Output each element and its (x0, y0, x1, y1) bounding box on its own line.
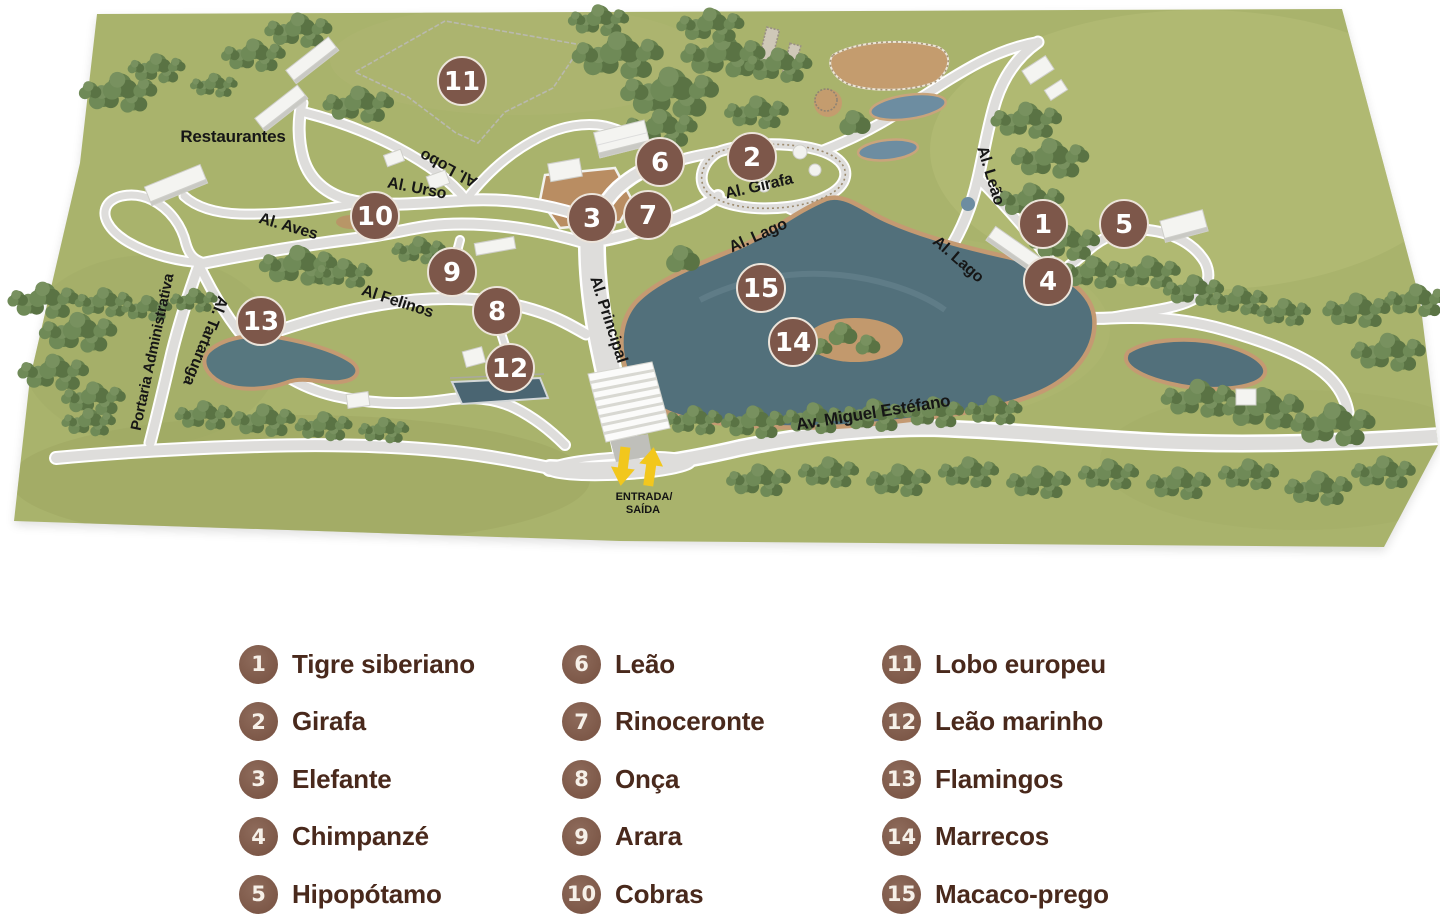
entrance-label-line1: ENTRADA/ (616, 491, 673, 503)
legend-column-1: 1Tigre siberiano 2Girafa 3Elefante 4Chim… (239, 645, 475, 916)
legend-label-14: Marrecos (935, 821, 1049, 852)
legend-item-9: 9Arara (562, 818, 764, 856)
legend-badge-7: 7 (562, 702, 601, 741)
svg-text:6: 6 (651, 148, 669, 178)
label-restaurantes: Restaurantes (180, 127, 285, 146)
legend-label-2: Girafa (292, 706, 366, 737)
legend-badge-15: 15 (882, 875, 921, 914)
legend-badge-1: 1 (239, 645, 278, 684)
legend-label-1: Tigre siberiano (292, 649, 475, 680)
svg-text:3: 3 (583, 204, 601, 234)
legend-item-13: 13Flamingos (882, 760, 1109, 798)
legend-badge-4: 4 (239, 817, 278, 856)
map-marker-12: 12 (486, 344, 534, 392)
map-marker-11: 11 (438, 57, 486, 105)
legend-item-10: 10Cobras (562, 875, 764, 913)
legend-badge-9: 9 (562, 817, 601, 856)
zoo-map: ENTRADA/ SAÍDA Restaurantes Al. Lobo Al.… (0, 0, 1440, 560)
legend-label-7: Rinoceronte (615, 706, 764, 737)
map-marker-13: 13 (237, 297, 285, 345)
svg-text:9: 9 (443, 258, 461, 288)
legend-badge-10: 10 (562, 875, 601, 914)
legend-label-6: Leão (615, 649, 675, 680)
legend-label-3: Elefante (292, 764, 392, 795)
legend-item-11: 11Lobo europeu (882, 645, 1109, 683)
map-marker-5: 5 (1100, 200, 1148, 248)
svg-text:13: 13 (243, 307, 279, 337)
legend-label-9: Arara (615, 821, 682, 852)
legend-item-8: 8Onça (562, 760, 764, 798)
legend-label-4: Chimpanzé (292, 821, 429, 852)
map-marker-9: 9 (428, 248, 476, 296)
legend-item-15: 15Macaco-prego (882, 875, 1109, 913)
legend-item-3: 3Elefante (239, 760, 475, 798)
svg-text:1: 1 (1034, 210, 1052, 240)
legend-item-2: 2Girafa (239, 703, 475, 741)
legend-badge-14: 14 (882, 817, 921, 856)
legend-badge-5: 5 (239, 875, 278, 914)
svg-text:8: 8 (488, 297, 506, 327)
legend-badge-12: 12 (882, 702, 921, 741)
pond-small-3 (961, 197, 975, 211)
map-marker-1: 1 (1019, 200, 1067, 248)
svg-text:15: 15 (743, 274, 779, 304)
legend-item-12: 12Leão marinho (882, 703, 1109, 741)
svg-text:5: 5 (1115, 210, 1133, 240)
svg-text:4: 4 (1039, 267, 1057, 297)
legend-label-13: Flamingos (935, 764, 1063, 795)
svg-text:12: 12 (492, 354, 528, 384)
legend-label-10: Cobras (615, 879, 703, 910)
legend-badge-11: 11 (882, 645, 921, 684)
map-marker-8: 8 (473, 287, 521, 335)
legend-item-14: 14Marrecos (882, 818, 1109, 856)
legend-item-4: 4Chimpanzé (239, 818, 475, 856)
legend-label-15: Macaco-prego (935, 879, 1109, 910)
legend-badge-6: 6 (562, 645, 601, 684)
legend-label-11: Lobo europeu (935, 649, 1106, 680)
zoo-map-page: ENTRADA/ SAÍDA Restaurantes Al. Lobo Al.… (0, 0, 1440, 916)
svg-text:14: 14 (775, 328, 811, 358)
legend-column-3: 11Lobo europeu 12Leão marinho 13Flamingo… (882, 645, 1109, 916)
map-marker-3: 3 (568, 194, 616, 242)
map-marker-2: 2 (728, 133, 776, 181)
legend-badge-2: 2 (239, 702, 278, 741)
legend-label-8: Onça (615, 764, 679, 795)
legend-badge-13: 13 (882, 760, 921, 799)
legend-column-2: 6Leão 7Rinoceronte 8Onça 9Arara 10Cobras (562, 645, 764, 916)
legend-badge-3: 3 (239, 760, 278, 799)
map-marker-14: 14 (769, 318, 817, 366)
svg-text:2: 2 (743, 143, 761, 173)
legend-label-5: Hipopótamo (292, 879, 442, 910)
map-marker-7: 7 (624, 191, 672, 239)
map-marker-6: 6 (636, 138, 684, 186)
legend-label-12: Leão marinho (935, 706, 1103, 737)
svg-text:7: 7 (639, 201, 657, 231)
legend-badge-8: 8 (562, 760, 601, 799)
legend-item-7: 7Rinoceronte (562, 703, 764, 741)
map-marker-4: 4 (1024, 257, 1072, 305)
svg-text:10: 10 (357, 202, 393, 232)
map-marker-15: 15 (737, 264, 785, 312)
legend-item-5: 5Hipopótamo (239, 875, 475, 913)
map-marker-10: 10 (351, 192, 399, 240)
legend-item-1: 1Tigre siberiano (239, 645, 475, 683)
entrance-label-line2: SAÍDA (626, 503, 660, 516)
svg-text:11: 11 (444, 67, 480, 97)
legend-item-6: 6Leão (562, 645, 764, 683)
